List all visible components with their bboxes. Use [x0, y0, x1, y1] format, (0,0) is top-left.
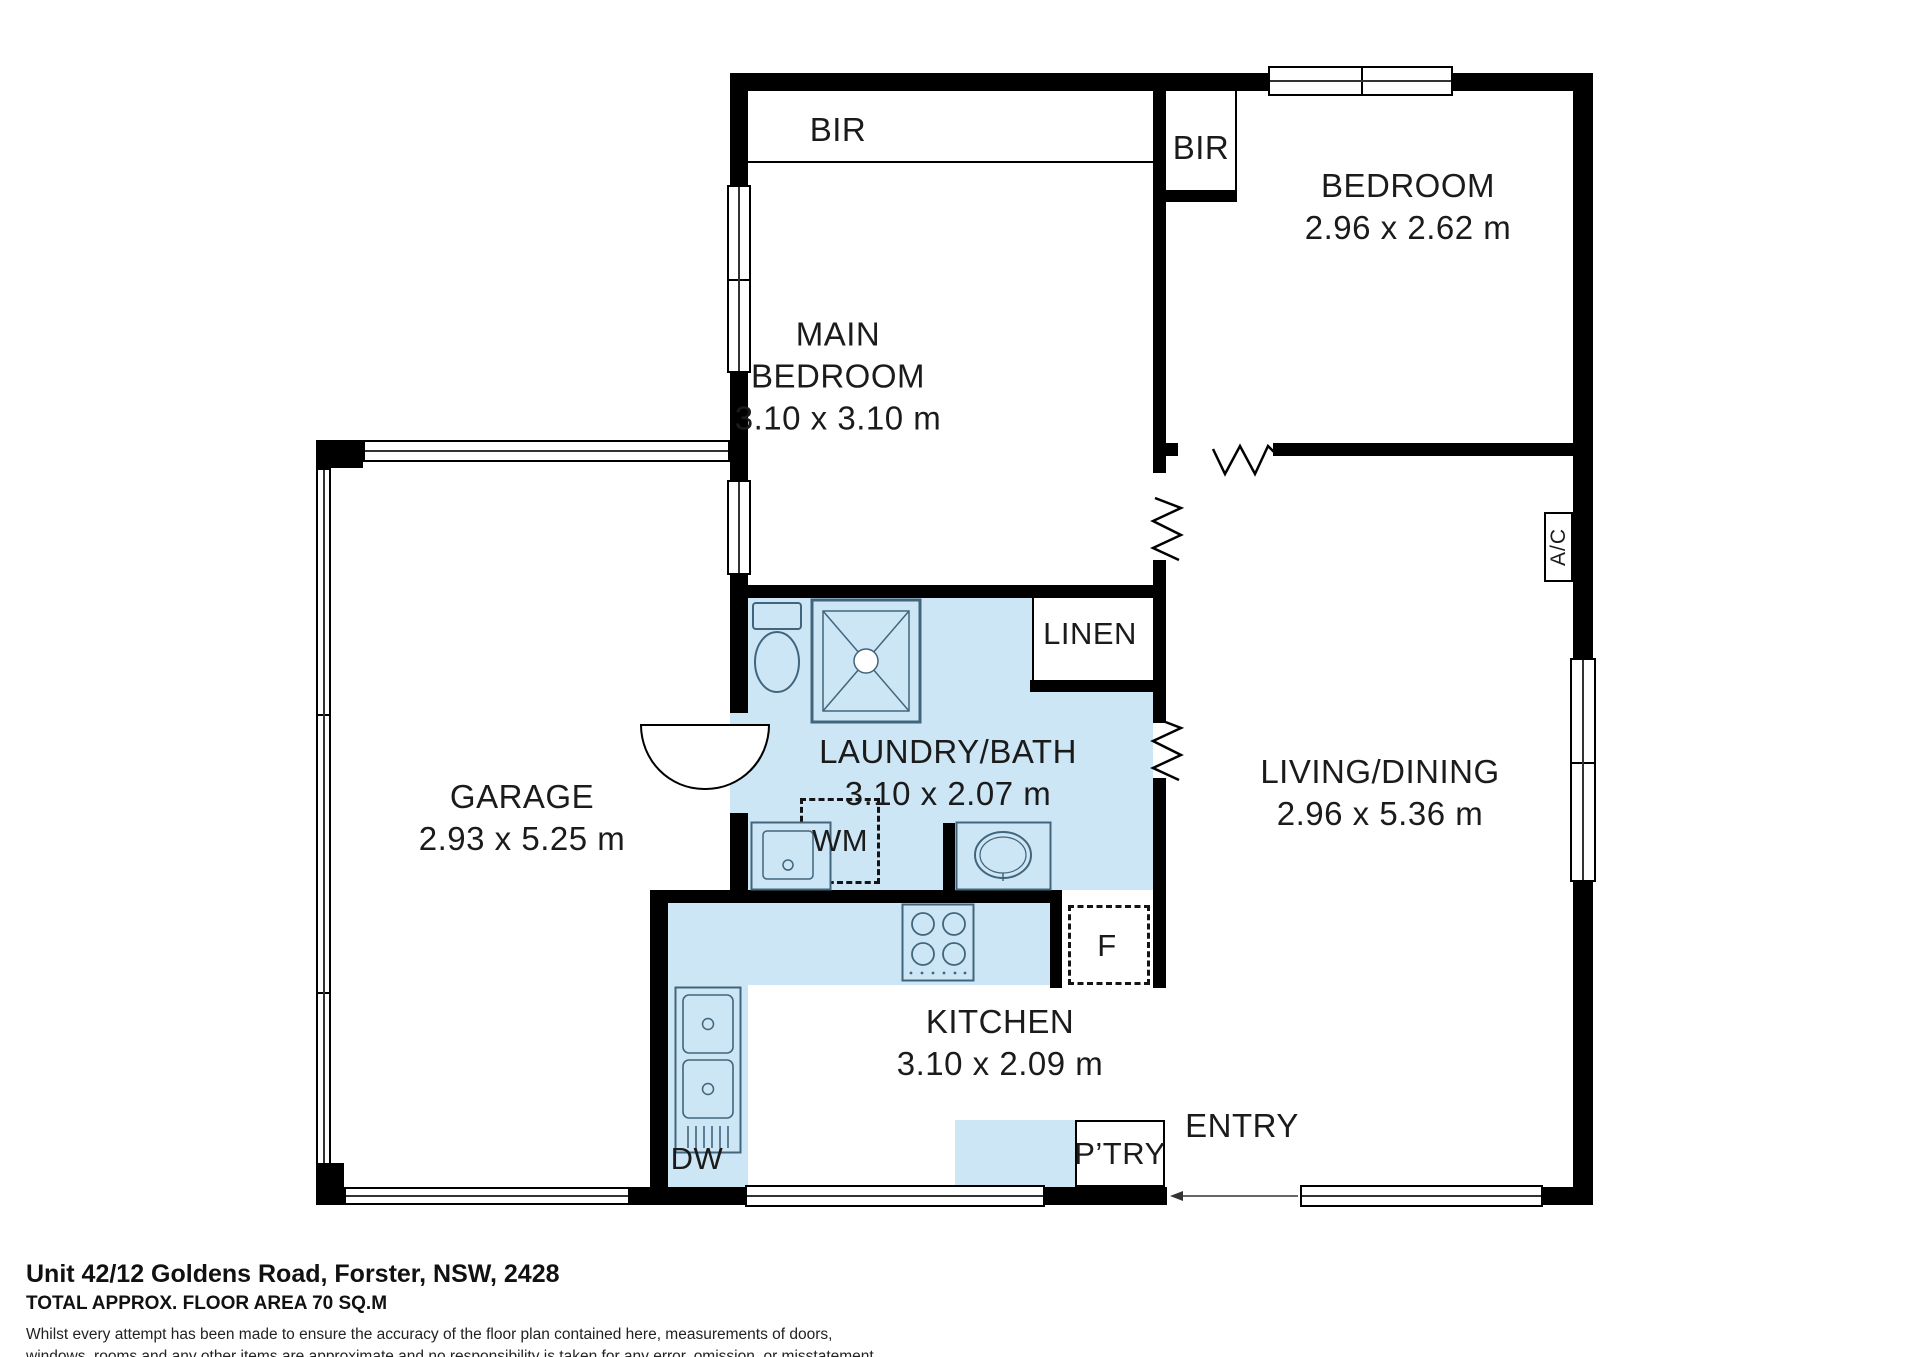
- room-name: GARAGE: [419, 776, 625, 818]
- main-bedroom-label: MAIN BEDROOM 3.10 x 3.10 m: [735, 314, 941, 441]
- bir-main-front-line: [748, 161, 1153, 163]
- fridge-label: F: [1097, 926, 1116, 966]
- wall-garage-corner-bl: [316, 1163, 344, 1205]
- wall-basin-stub: [943, 823, 955, 890]
- garage-label: GARAGE 2.93 x 5.25 m: [419, 776, 625, 860]
- air-conditioner-box: A/C: [1544, 512, 1573, 582]
- window-divider: [1361, 68, 1363, 94]
- window-living-right: [1570, 658, 1596, 882]
- room-name: KITCHEN: [897, 1001, 1103, 1043]
- wall-bedroom-bottom-stub: [1166, 443, 1178, 456]
- room-dims: 3.10 x 2.07 m: [819, 773, 1077, 815]
- entry-label: ENTRY: [1185, 1105, 1299, 1147]
- wall-central-upper: [1153, 91, 1166, 473]
- window-bedroom-top: [1268, 66, 1453, 96]
- wall-bedroom-bottom: [1273, 443, 1573, 456]
- shower-icon: [810, 598, 922, 724]
- room-name: BEDROOM: [735, 356, 941, 398]
- wall-linen-bottom: [1030, 680, 1155, 692]
- window-divider: [1572, 762, 1594, 764]
- wall-bottom-2: [1045, 1187, 1167, 1205]
- window-living-bottom: [1300, 1185, 1543, 1207]
- disclaimer-line-1: Whilst every attempt has been made to en…: [26, 1324, 878, 1346]
- room-name: MAIN: [735, 314, 941, 356]
- window-kitchen-bottom: [745, 1185, 1045, 1207]
- cooktop-icon: [901, 903, 975, 982]
- wall-right-upper: [1573, 73, 1593, 660]
- garage-door-panel: [344, 1187, 630, 1205]
- wall-left-1: [730, 73, 748, 187]
- floor-plan: A/C: [0, 0, 1920, 1357]
- room-name: LAUNDRY/BATH: [819, 731, 1077, 773]
- wall-bottom-3: [1543, 1187, 1593, 1205]
- bathroom-basin-icon: [955, 821, 1052, 891]
- linen-label: LINEN: [1043, 614, 1137, 654]
- wall-garage-corner-tl: [316, 440, 363, 468]
- kitchen-sink-dishwasher-icon: [674, 986, 742, 1154]
- pantry-label: P’TRY: [1074, 1134, 1166, 1174]
- air-conditioner-label: A/C: [1547, 528, 1571, 566]
- disclaimer-line-2: windows, rooms and any other items are a…: [26, 1346, 878, 1357]
- property-address: Unit 42/12 Goldens Road, Forster, NSW, 2…: [26, 1260, 878, 1289]
- bir-main-label: BIR: [810, 109, 867, 151]
- wall-right-lower: [1573, 880, 1593, 1205]
- window-divider: [318, 992, 329, 994]
- living-dining-label: LIVING/DINING 2.96 x 5.36 m: [1260, 751, 1499, 835]
- toilet-icon: [751, 601, 803, 695]
- kitchen-counter-top: [748, 903, 1050, 985]
- window-main-bedroom-left-2: [727, 480, 751, 575]
- wall-laundry-top: [730, 585, 1166, 598]
- bir-bedroom-label: BIR: [1173, 127, 1230, 169]
- garage-side-panel: [316, 468, 331, 1165]
- total-floor-area: TOTAL APPROX. FLOOR AREA 70 SQ.M: [26, 1293, 878, 1315]
- room-name: BEDROOM: [1305, 165, 1511, 207]
- kitchen-bench: [955, 1120, 1075, 1187]
- opening-zigzag-main-bedroom: [1151, 498, 1185, 566]
- window-divider: [318, 714, 329, 716]
- wall-fridge-nook: [1050, 892, 1062, 988]
- room-dims: 2.93 x 5.25 m: [419, 818, 625, 860]
- bir-bedroom-side-line: [1235, 91, 1237, 192]
- room-name: LIVING/DINING: [1260, 751, 1499, 793]
- wall-bottom-1: [625, 1187, 745, 1205]
- wall-central-lower: [1153, 778, 1166, 988]
- room-dims: 2.96 x 5.36 m: [1260, 793, 1499, 835]
- wall-laundry-bottom: [650, 890, 1062, 903]
- bedroom-label: BEDROOM 2.96 x 2.62 m: [1305, 165, 1511, 249]
- window-divider: [729, 279, 749, 281]
- garage-top-panel: [363, 440, 730, 462]
- room-dims: 2.96 x 2.62 m: [1305, 207, 1511, 249]
- opening-zigzag-laundry: [1151, 718, 1185, 786]
- wall-central-mid: [1153, 560, 1166, 723]
- wall-bir-bedroom-bottom: [1166, 190, 1237, 202]
- room-dims: 3.10 x 2.09 m: [897, 1043, 1103, 1085]
- wall-kitchen-left: [650, 890, 668, 1205]
- room-dims: 3.10 x 3.10 m: [735, 398, 941, 440]
- washing-machine-label: WM: [812, 821, 868, 861]
- laundry-bath-label: LAUNDRY/BATH 3.10 x 2.07 m: [819, 731, 1077, 815]
- wall-top: [730, 73, 1593, 91]
- kitchen-label: KITCHEN 3.10 x 2.09 m: [897, 1001, 1103, 1085]
- opening-zigzag-bedroom: [1213, 441, 1275, 479]
- entry-arrow-icon: [1170, 1186, 1300, 1206]
- dishwasher-label: DW: [671, 1139, 724, 1179]
- footer: Unit 42/12 Goldens Road, Forster, NSW, 2…: [26, 1260, 878, 1357]
